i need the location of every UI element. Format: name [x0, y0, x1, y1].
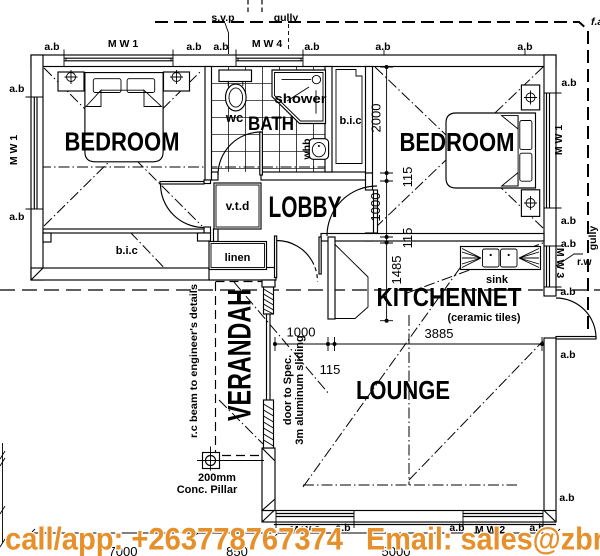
- svg-text:a.b: a.b: [213, 41, 228, 53]
- svg-text:gully: gully: [587, 226, 599, 251]
- svg-text:KITCHENNET: KITCHENNET: [377, 282, 522, 312]
- svg-text:a.b: a.b: [517, 41, 532, 53]
- svg-text:f.a: f.a: [591, 16, 600, 28]
- svg-text:1000: 1000: [368, 193, 383, 222]
- svg-text:door to Spec.: door to Spec.: [282, 355, 294, 425]
- svg-text:BEDROOM: BEDROOM: [65, 127, 180, 157]
- svg-text:call/app: +263778767374: call/app: +263778767374: [5, 521, 343, 556]
- svg-text:a.b: a.b: [375, 41, 390, 53]
- svg-text:a.b: a.b: [9, 211, 24, 223]
- svg-text:M W 1: M W 1: [8, 135, 20, 165]
- svg-text:1485: 1485: [389, 256, 404, 285]
- svg-text:115: 115: [400, 228, 415, 249]
- svg-text:whb: whb: [301, 139, 313, 161]
- svg-text:a.b: a.b: [44, 41, 59, 53]
- svg-text:115: 115: [320, 362, 341, 377]
- svg-text:LOBBY: LOBBY: [269, 191, 342, 224]
- svg-text:a.b: a.b: [561, 77, 576, 89]
- svg-text:a.b: a.b: [304, 41, 319, 53]
- svg-text:200mm: 200mm: [198, 472, 236, 484]
- svg-text:LOUNGE: LOUNGE: [356, 375, 450, 405]
- svg-text:3m aluminum sliding: 3m aluminum sliding: [294, 335, 306, 444]
- svg-text:v.t.d: v.t.d: [226, 199, 250, 213]
- svg-text:M W 4: M W 4: [252, 38, 282, 50]
- svg-text:a.b: a.b: [561, 215, 576, 227]
- svg-text:(ceramic tiles): (ceramic tiles): [448, 312, 521, 324]
- svg-text:1000: 1000: [287, 325, 316, 340]
- svg-text:a.b: a.b: [9, 83, 24, 95]
- svg-text:a.b: a.b: [560, 349, 575, 361]
- svg-text:Conc. Pillar: Conc. Pillar: [177, 484, 238, 496]
- svg-text:3885: 3885: [425, 326, 454, 341]
- svg-text:wc: wc: [225, 110, 243, 125]
- svg-text:a.b: a.b: [559, 492, 574, 504]
- svg-text:gully: gully: [274, 12, 299, 24]
- svg-text:115: 115: [400, 167, 415, 188]
- svg-text:BEDROOM: BEDROOM: [400, 127, 515, 157]
- svg-text:r.c beam to engineer's details: r.c beam to engineer's details: [188, 284, 200, 438]
- svg-text:sink: sink: [486, 274, 509, 286]
- svg-text:a.b: a.b: [186, 41, 201, 53]
- svg-text:BATH: BATH: [248, 114, 294, 135]
- svg-text:2000: 2000: [369, 104, 384, 133]
- svg-text:r.w: r.w: [577, 256, 592, 268]
- svg-text:M W 1: M W 1: [108, 38, 138, 50]
- svg-text:linen: linen: [225, 252, 251, 264]
- svg-text:s.v.p: s.v.p: [211, 12, 234, 24]
- svg-text:b.i.c: b.i.c: [116, 245, 138, 257]
- svg-text:a.b: a.b: [560, 286, 575, 298]
- svg-text:M W 1: M W 1: [553, 125, 565, 155]
- svg-text:b.i.c: b.i.c: [339, 115, 361, 127]
- svg-text:shower: shower: [275, 92, 327, 106]
- svg-text:Email: sales@zbr: Email: sales@zbr: [366, 521, 600, 556]
- svg-text:VERANDAH: VERANDAH: [222, 289, 258, 421]
